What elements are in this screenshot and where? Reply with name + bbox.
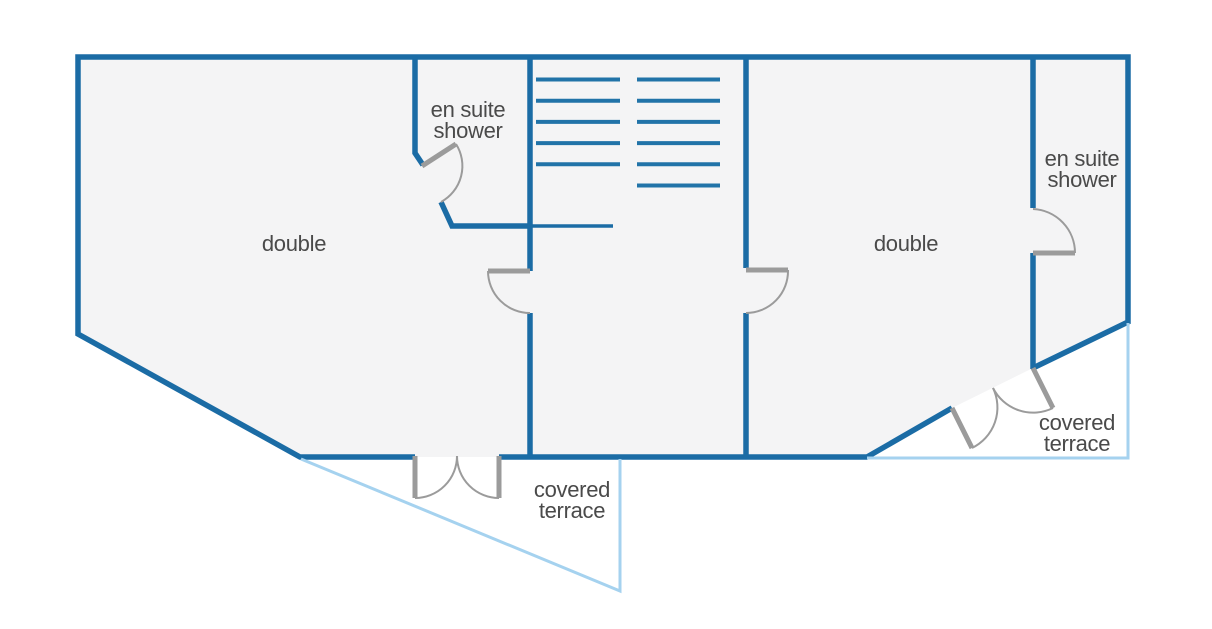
building-floor: [78, 59, 1128, 457]
door-leaf: [952, 408, 972, 448]
room-label-ensuite-left-line2: shower: [433, 118, 502, 143]
room-label-terrace-left-line2: terrace: [539, 498, 605, 523]
room-label-ensuite-right-line2: shower: [1047, 167, 1116, 192]
door-swing-arc: [457, 456, 499, 498]
floor-plan: double double en suite shower en suite s…: [0, 0, 1212, 629]
double-door-terrace-left: [415, 456, 499, 498]
room-label-terrace-right-line2: terrace: [1044, 431, 1110, 456]
door-swing-arc: [415, 456, 457, 498]
door-leaf: [1033, 368, 1053, 408]
room-label-double-left: double: [262, 231, 326, 256]
room-label-double-right: double: [874, 231, 938, 256]
door-swing-arc: [972, 388, 997, 448]
floor-plan-canvas: double double en suite shower en suite s…: [0, 0, 1212, 629]
